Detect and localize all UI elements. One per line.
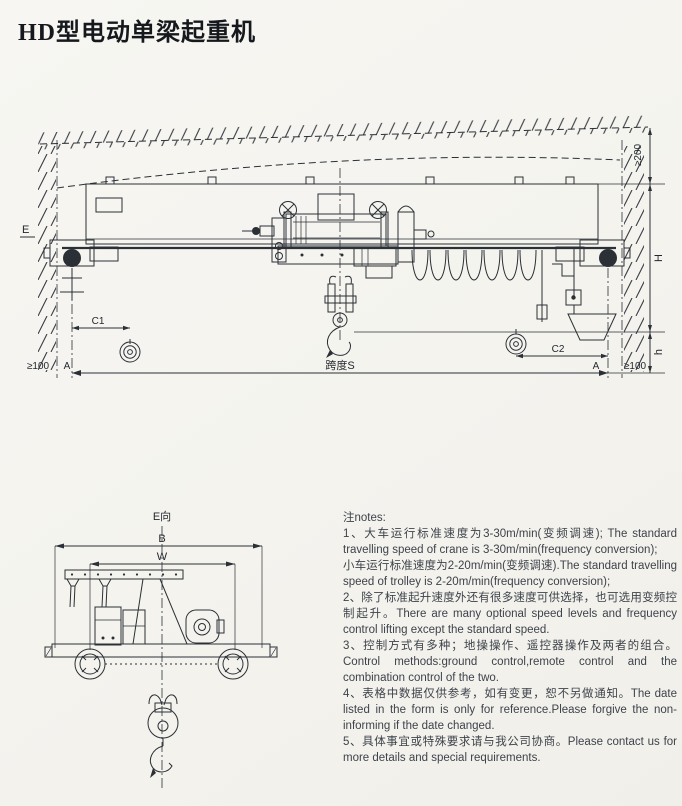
hook-height-label: h: [653, 349, 665, 355]
center-mark-icon: [370, 202, 387, 219]
notes-heading: 注notes:: [343, 510, 677, 526]
note-item-1b: 小车运行标准速度为2-20m/min(变频调速).The standard tr…: [343, 558, 677, 590]
side-clearance-right-label: ≥100: [624, 361, 647, 372]
wall-left: [38, 140, 57, 378]
hoist-hangers: [67, 579, 187, 644]
lift-height-label: H: [653, 254, 665, 262]
hoist-trolley: [242, 206, 434, 278]
hook-approach-left-label: C1: [92, 316, 105, 327]
trolley-frame: [45, 644, 277, 657]
hook-block: [148, 695, 178, 778]
main-elevation-drawing: E: [10, 100, 670, 392]
top-clearance-label: ≥200: [633, 143, 644, 166]
note-item-3: 3、控制方式有多种；地操操作、遥控器操作及两者的组合。Control metho…: [343, 638, 677, 686]
girder-name-plate: [96, 198, 122, 212]
note-item-5: 5、具体事宜或特殊要求请与我公司协商。Please contact us for…: [343, 734, 677, 766]
side-clearance-left-label: ≥100: [27, 361, 50, 372]
hook-left: [120, 339, 140, 362]
hook-center: [325, 276, 356, 358]
cable-chute: [568, 314, 616, 340]
note-item-1: 1、大车运行标准速度为3-30m/min(变频调速); The standard…: [343, 526, 677, 558]
inspection-box: [318, 194, 354, 220]
festoon-cable: [412, 250, 547, 322]
trolley-wheel-right: [218, 649, 248, 679]
rail-center-right-label: A: [593, 361, 600, 372]
trolley-side-view-drawing: E向 B W: [25, 500, 305, 800]
dimension-lines: [72, 128, 665, 376]
clearance-curve: [57, 157, 620, 188]
view-caption-label: E向: [153, 509, 171, 523]
hook-approach-right-label: C2: [552, 344, 565, 355]
trolley-wheel-left: [75, 649, 105, 679]
hoist-motor: [354, 248, 396, 266]
center-mark-icon: [280, 202, 297, 219]
note-item-2: 2、除了标准起升速度外还有很多速度可供选择，也可选用变频控制起升。There a…: [343, 590, 677, 638]
hook-right: [506, 329, 526, 354]
scanned-catalog-page: { "page": { "title": "HD型电动单梁起重机", "pape…: [0, 0, 682, 806]
trolley-motor: [186, 610, 224, 643]
ceiling-hatch: [38, 115, 648, 149]
girder-flange: [65, 570, 183, 579]
view-e-label: E: [22, 224, 29, 236]
main-girder: [62, 177, 616, 248]
wall-right: [622, 140, 644, 378]
rail-center-left-label: A: [64, 361, 71, 372]
span-label: 跨度S: [325, 358, 354, 372]
note-item-4: 4、表格中数据仅供参考，如有变更，恕不另做通知。The date listed …: [343, 686, 677, 734]
page-title: HD型电动单梁起重机: [18, 12, 256, 47]
notes-section: 注notes: 1、大车运行标准速度为3-30m/min(变频调速); The …: [343, 510, 677, 766]
